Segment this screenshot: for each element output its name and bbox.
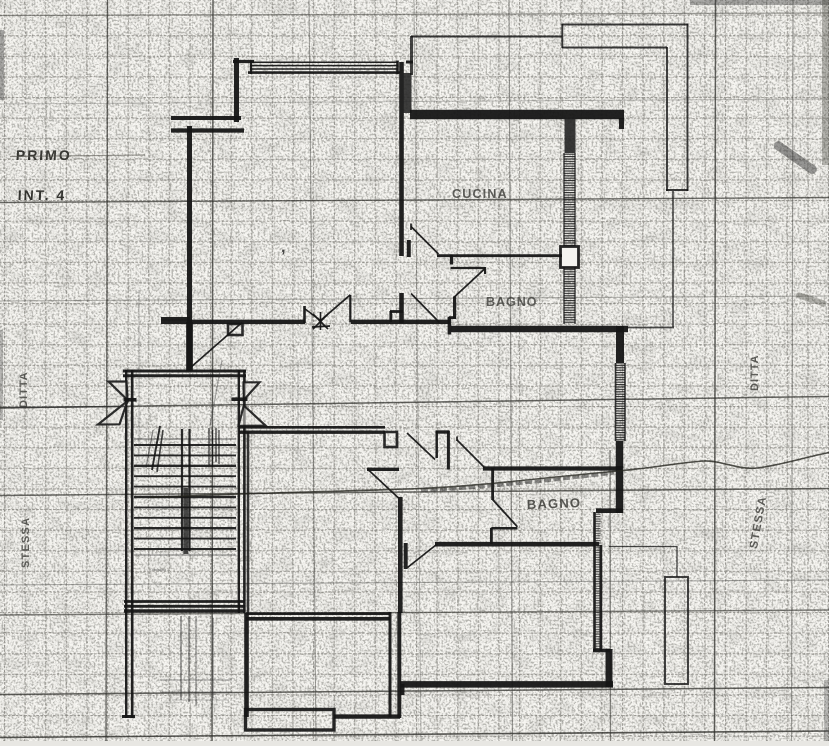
svg-text:INT. 4: INT. 4 [17, 187, 66, 203]
svg-text:PRIMO: PRIMO [15, 147, 72, 163]
svg-text:CUCINA: CUCINA [452, 187, 508, 201]
svg-text:BAGNO: BAGNO [527, 495, 582, 512]
svg-text:BAGNO: BAGNO [486, 295, 538, 309]
svg-text:,: , [281, 239, 285, 256]
svg-text:STESSA: STESSA [20, 517, 32, 568]
svg-text:DITTA: DITTA [749, 354, 761, 391]
svg-text:DITTA: DITTA [18, 371, 30, 408]
